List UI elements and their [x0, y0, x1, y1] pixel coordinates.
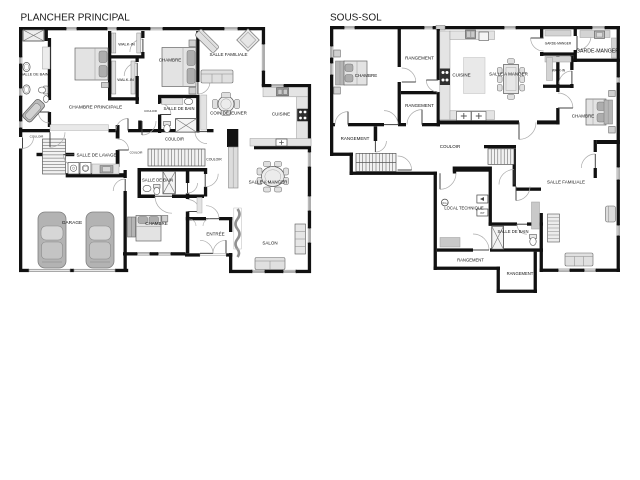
svg-text:SALLE DE BAIN: SALLE DE BAIN — [20, 73, 48, 77]
svg-text:SOUS-SOL: SOUS-SOL — [330, 13, 382, 24]
svg-text:COIN DÉJEUNER: COIN DÉJEUNER — [210, 110, 248, 116]
svg-text:LOCAL TECHNIQUE: LOCAL TECHNIQUE — [444, 206, 484, 211]
svg-text:GARDE-MANGER: GARDE-MANGER — [545, 42, 572, 46]
svg-text:SALLE FAMILIALE: SALLE FAMILIALE — [547, 180, 585, 185]
svg-text:GARDE-MANGER: GARDE-MANGER — [576, 49, 619, 55]
svg-text:SALLE FAMILIALE: SALLE FAMILIALE — [209, 52, 247, 57]
svg-text:WALK-IN: WALK-IN — [118, 42, 135, 47]
svg-text:COULOIR: COULOIR — [130, 151, 143, 155]
svg-text:RANGEMENT: RANGEMENT — [457, 258, 484, 263]
svg-text:SALLE A MANGER: SALLE A MANGER — [489, 72, 529, 77]
svg-text:SALLE DE LAVAGE: SALLE DE LAVAGE — [76, 153, 116, 158]
svg-text:RANGEMENT: RANGEMENT — [405, 56, 434, 61]
svg-text:COULOIR: COULOIR — [440, 144, 461, 149]
svg-text:WT: WT — [480, 211, 485, 215]
svg-text:SALLE DE BAIN: SALLE DE BAIN — [142, 178, 173, 183]
svg-text:SALON: SALON — [262, 241, 277, 246]
svg-text:COULOIR: COULOIR — [144, 109, 157, 113]
svg-text:WALK-IN: WALK-IN — [117, 77, 134, 82]
svg-text:CHAMBRE: CHAMBRE — [572, 114, 595, 119]
svg-text:ENTRÉE: ENTRÉE — [206, 231, 224, 237]
svg-text:WALK-IN: WALK-IN — [552, 69, 566, 73]
svg-text:W-H: W-H — [442, 201, 447, 205]
svg-text:CHAMBRE: CHAMBRE — [159, 58, 182, 63]
svg-text:COULOIR: COULOIR — [165, 137, 184, 142]
svg-text:PLANCHER PRINCIPAL: PLANCHER PRINCIPAL — [21, 13, 131, 24]
svg-text:RANGEMENT: RANGEMENT — [405, 103, 434, 108]
svg-text:SALLE A MANGER: SALLE A MANGER — [249, 180, 289, 185]
svg-text:SALLE DE BAIN: SALLE DE BAIN — [164, 106, 195, 111]
svg-text:GARAGE: GARAGE — [62, 220, 83, 226]
svg-text:RANGEMENT: RANGEMENT — [341, 136, 370, 141]
svg-text:CHAMBRE PRINCIPALE: CHAMBRE PRINCIPALE — [69, 105, 123, 111]
svg-text:CUISINE: CUISINE — [452, 73, 470, 78]
svg-text:SALLE DE BAIN: SALLE DE BAIN — [498, 229, 529, 234]
svg-text:CHAMBRE: CHAMBRE — [145, 221, 168, 226]
svg-text:COULOIR: COULOIR — [30, 135, 45, 139]
svg-text:RANGEMENT: RANGEMENT — [507, 271, 534, 276]
svg-text:COULOIR: COULOIR — [206, 158, 222, 162]
svg-text:CHAMBRE: CHAMBRE — [355, 73, 378, 78]
svg-text:CUISINE: CUISINE — [272, 112, 290, 117]
